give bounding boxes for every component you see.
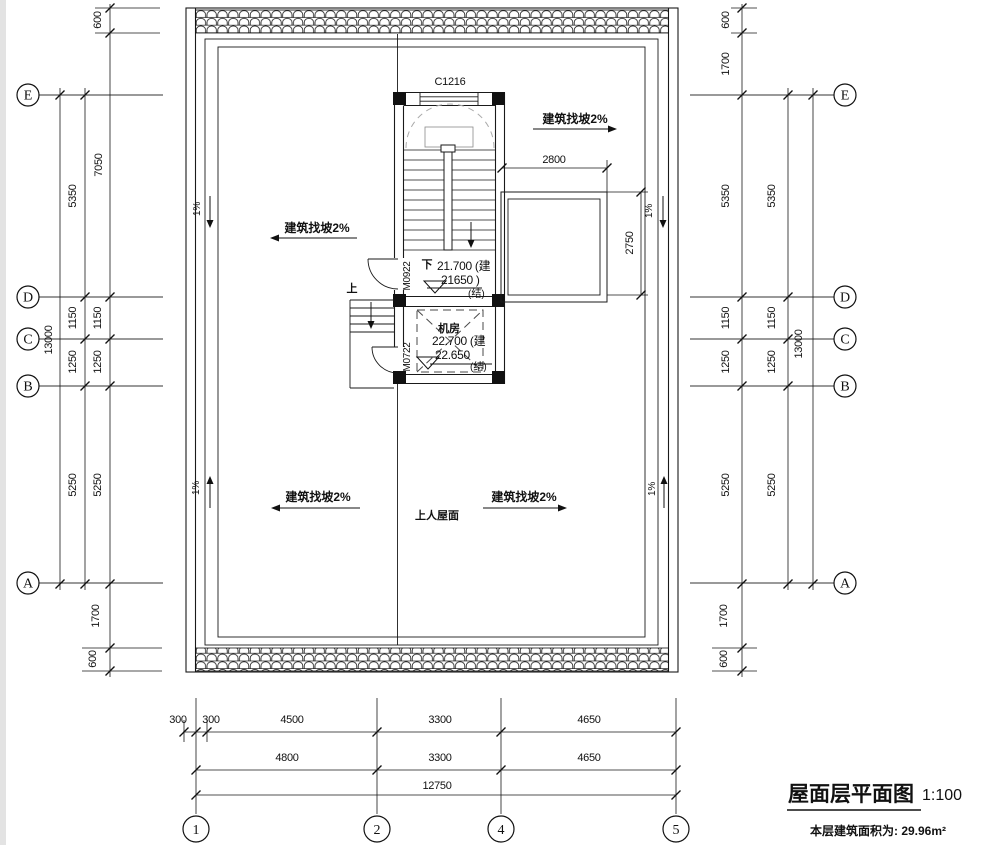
grid-bubbles-right: E D C B A — [834, 84, 856, 594]
slope-arrow-left-icon — [270, 235, 279, 242]
dim-bot-r1-4: 4650 — [577, 714, 600, 726]
slope1-left-bottom: 1% — [191, 481, 202, 495]
roof-access-label: 上人屋面 — [415, 508, 459, 522]
stair-core — [368, 93, 505, 308]
headroom-arc — [406, 104, 494, 148]
dim-bot-r2-0: 4800 — [275, 752, 298, 764]
dim-bot-r2-1: 3300 — [428, 752, 451, 764]
dim-left-in-2: 1150 — [92, 307, 104, 330]
grid-bubble-5: 5 — [673, 823, 680, 838]
slope1-arrow-up-rb-icon — [661, 476, 668, 484]
dim-left-mid-0: 5350 — [67, 184, 79, 207]
dim-bot-r1-0: 300 — [169, 714, 187, 726]
machine-level-marker: 22.700 (建 22.650 (结) — [417, 334, 492, 373]
dim-left-in-4: 5250 — [92, 473, 104, 496]
dim-right-mid-2: 1250 — [766, 350, 778, 373]
slope1-arrow-up-lb-icon — [207, 476, 214, 484]
machine-room-label: 机房 — [438, 321, 460, 335]
machine-door-label: M0722 — [402, 342, 413, 372]
machine-level-struct: 22.650 — [435, 348, 471, 362]
grid-bubble-2: 2 — [374, 823, 381, 838]
slope-arrow-right-icon — [608, 126, 617, 133]
detail-dimensions — [502, 160, 648, 295]
up-label: 上 — [347, 281, 358, 295]
slope-label-bottom-right: 建筑找坡2% — [490, 489, 557, 504]
dim-left-in-6: 600 — [87, 650, 99, 668]
dim-bot-r1-1: 300 — [202, 714, 220, 726]
window-label: C1216 — [435, 76, 466, 88]
dim-right-in-2: 5350 — [720, 184, 732, 207]
page-edge-strip — [0, 0, 6, 845]
dim-right-in-6: 1700 — [718, 604, 730, 627]
dim-left-in-3: 1250 — [92, 350, 104, 373]
dim-right-in-0: 600 — [720, 11, 732, 29]
grid-bubble-C-right: C — [840, 333, 849, 348]
grid-bubble-A-left: A — [23, 577, 34, 592]
dim-right-in-3: 1150 — [720, 307, 732, 330]
dim-right-in-5: 5250 — [720, 473, 732, 496]
dim-lower-roof: 2750 — [624, 231, 636, 254]
small-stair-up-arrow-icon — [368, 321, 375, 329]
slope1-right-top: 1% — [644, 204, 655, 218]
dim-left-in-1: 7050 — [93, 153, 105, 176]
dim-bot-r1-2: 4500 — [280, 714, 303, 726]
stair-level-struct-tag: (结) — [468, 287, 485, 300]
stairwell-opening — [425, 127, 473, 147]
drawing-title: 屋面层平面图 — [788, 783, 914, 806]
stair-level-struct: 21650 ) — [441, 273, 480, 287]
dim-stair-bay: 2800 — [542, 154, 565, 166]
dim-bot-r1-3: 3300 — [428, 714, 451, 726]
grid-bubble-A-right: A — [840, 577, 851, 592]
floor-plan-canvas: 2800 2750 建筑找坡2% 建筑找坡2% 建筑找坡2% 建筑找坡2% 上人… — [0, 0, 997, 845]
dim-bot-r2-2: 4650 — [577, 752, 600, 764]
grid-bubble-B-right: B — [840, 380, 849, 395]
grid-bubble-B-left: B — [23, 380, 32, 395]
slope-annotations: 建筑找坡2% 建筑找坡2% 建筑找坡2% 建筑找坡2% 上人屋面 1% 1% 1… — [191, 111, 668, 522]
tile-band-top — [196, 10, 669, 33]
dim-right-mid-0: 5350 — [766, 184, 778, 207]
slope-arrow-right2-icon — [558, 505, 567, 512]
lower-roof — [501, 192, 607, 302]
stair-level-arch: 21.700 (建 — [437, 259, 491, 273]
dim-left-mid-1: 1150 — [67, 307, 79, 330]
grid-left — [39, 4, 163, 677]
dim-left-in-5: 1700 — [90, 604, 102, 627]
dim-left-in-0: 600 — [92, 11, 104, 29]
slope-label-mid-left: 建筑找坡2% — [283, 220, 350, 235]
slope1-arrow-down-lt-icon — [207, 220, 214, 228]
grid-bubble-4: 4 — [498, 823, 505, 838]
grid-bubble-D-left: D — [23, 291, 33, 306]
dim-right-mid-1: 1150 — [766, 307, 778, 330]
dim-right-in-4: 1250 — [720, 350, 732, 373]
grid-bubble-E-left: E — [24, 89, 33, 104]
machine-level-arch: 22.700 (建 — [432, 334, 486, 348]
small-stair — [350, 300, 394, 388]
tile-band-bottom — [196, 648, 669, 671]
slope1-left-top: 1% — [192, 202, 203, 216]
slope-arrow-left2-icon — [271, 505, 280, 512]
roof-plan-sheet: 2800 2750 建筑找坡2% 建筑找坡2% 建筑找坡2% 建筑找坡2% 上人… — [0, 0, 997, 845]
grid-right — [690, 4, 834, 677]
dim-right-in-7: 600 — [718, 650, 730, 668]
title-block: 屋面层平面图 1:100 本层建筑面积为: 29.96m² — [787, 783, 962, 838]
stair-door-label: M0922 — [402, 261, 413, 291]
dim-bot-total: 12750 — [422, 780, 451, 792]
grid-bubble-E-right: E — [841, 89, 850, 104]
grid-bubble-C-left: C — [23, 333, 32, 348]
grid-bubbles-left: E D C B A — [17, 84, 39, 594]
dim-right-mid-3: 5250 — [766, 473, 778, 496]
slope-label-bottom-left: 建筑找坡2% — [284, 489, 351, 504]
machine-door-swing — [372, 347, 398, 373]
machine-level-struct-tag: (结) — [470, 360, 487, 373]
grid-bubbles-bottom: 1 2 4 5 — [183, 816, 689, 842]
dimensions-bottom: 300 300 4500 3300 4650 4800 3300 4650 12… — [169, 714, 601, 792]
dim-right-in-1: 1700 — [720, 52, 732, 75]
down-label: 下 — [422, 258, 433, 271]
stair-door-swing — [368, 259, 398, 289]
slope-label-top-right: 建筑找坡2% — [541, 111, 608, 126]
dim-right-total: 13000 — [793, 329, 805, 358]
stair-level-marker: 21.700 (建 21650 ) (结) — [424, 259, 491, 300]
slope1-arrow-down-rt-icon — [660, 220, 667, 228]
dim-left-total: 13000 — [43, 325, 55, 354]
area-note: 本层建筑面积为: 29.96m² — [810, 823, 946, 838]
grid-bubble-D-right: D — [840, 291, 850, 306]
drawing-scale: 1:100 — [922, 787, 962, 804]
slope1-right-bottom: 1% — [647, 482, 658, 496]
dim-left-mid-2: 1250 — [67, 350, 79, 373]
dim-left-mid-3: 5250 — [67, 473, 79, 496]
grid-bubble-1: 1 — [193, 823, 200, 838]
stair-down-arrow-icon — [468, 240, 475, 248]
